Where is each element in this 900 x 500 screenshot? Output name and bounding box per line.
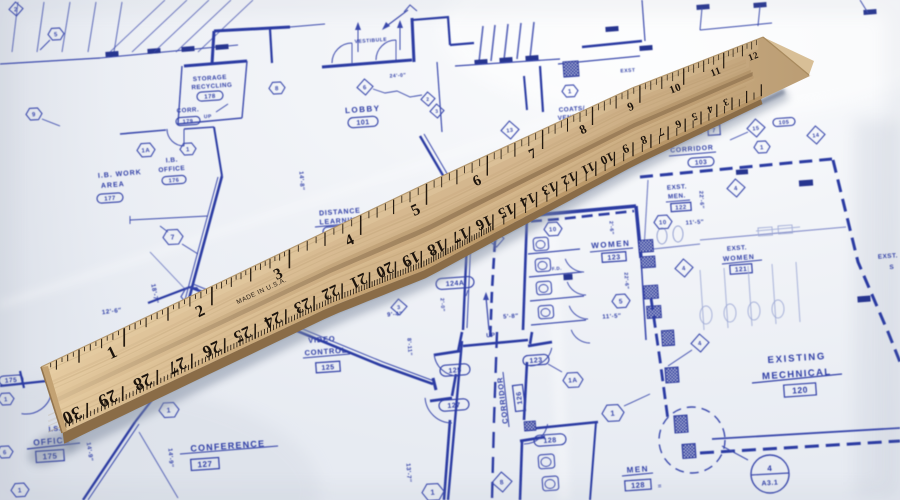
svg-text:15: 15: [752, 126, 760, 133]
svg-text:EXST: EXST: [620, 67, 635, 74]
svg-text:UP: UP: [204, 114, 213, 121]
svg-text:10: 10: [549, 227, 557, 234]
svg-text:103: 103: [695, 159, 708, 167]
svg-text:2'-0″: 2'-0″: [439, 298, 446, 312]
svg-text:22'-6″: 22'-6″: [622, 272, 629, 289]
svg-text:2'-6″: 2'-6″: [608, 221, 615, 235]
svg-text:5'-8″: 5'-8″: [503, 313, 519, 320]
svg-text:178: 178: [204, 94, 216, 101]
svg-text:127: 127: [197, 459, 212, 469]
svg-text:121: 121: [735, 266, 748, 274]
svg-text:F.D.: F.D.: [552, 266, 562, 272]
svg-text:1: 1: [610, 409, 615, 418]
svg-text:127: 127: [447, 402, 461, 410]
svg-text:1: 1: [166, 407, 171, 414]
svg-text:5: 5: [54, 32, 58, 38]
svg-text:9'-4″: 9'-4″: [387, 311, 403, 318]
svg-text:EXST.: EXST.: [667, 183, 687, 191]
svg-text:UP: UP: [486, 333, 496, 340]
svg-text:125: 125: [321, 364, 335, 372]
svg-text:9: 9: [32, 112, 36, 118]
svg-text:14: 14: [812, 132, 820, 139]
svg-text:105: 105: [779, 120, 790, 127]
svg-text:177: 177: [104, 196, 116, 203]
svg-text:123: 123: [607, 254, 621, 262]
svg-text:7: 7: [170, 234, 175, 241]
svg-text:8'-11″: 8'-11″: [405, 338, 412, 356]
svg-text:5: 5: [619, 298, 624, 305]
svg-text:1: 1: [186, 147, 190, 153]
svg-text:8: 8: [275, 86, 279, 92]
svg-text:124A: 124A: [445, 280, 464, 288]
svg-text:1A: 1A: [568, 377, 578, 385]
svg-text:1: 1: [760, 145, 764, 151]
svg-text:MEN.: MEN.: [668, 192, 686, 200]
svg-text:123: 123: [529, 357, 543, 365]
svg-text:120: 120: [792, 385, 808, 396]
svg-text:EXST.: EXST.: [727, 244, 747, 252]
svg-text:176: 176: [169, 178, 180, 185]
svg-text:101: 101: [356, 119, 370, 127]
svg-text:179: 179: [183, 119, 194, 126]
svg-text:10: 10: [659, 220, 667, 227]
svg-text:1A: 1A: [141, 148, 150, 155]
svg-text:128: 128: [543, 437, 557, 445]
svg-text:122: 122: [675, 205, 687, 212]
svg-text:22'-6″: 22'-6″: [697, 191, 704, 209]
svg-text:13: 13: [506, 128, 514, 135]
svg-text:11'-5″: 11'-5″: [686, 219, 705, 226]
svg-text:1: 1: [568, 89, 572, 95]
svg-text:4: 4: [767, 464, 773, 473]
svg-text:I.B.: I.B.: [166, 156, 179, 164]
svg-text:24'-0″: 24'-0″: [389, 72, 406, 79]
